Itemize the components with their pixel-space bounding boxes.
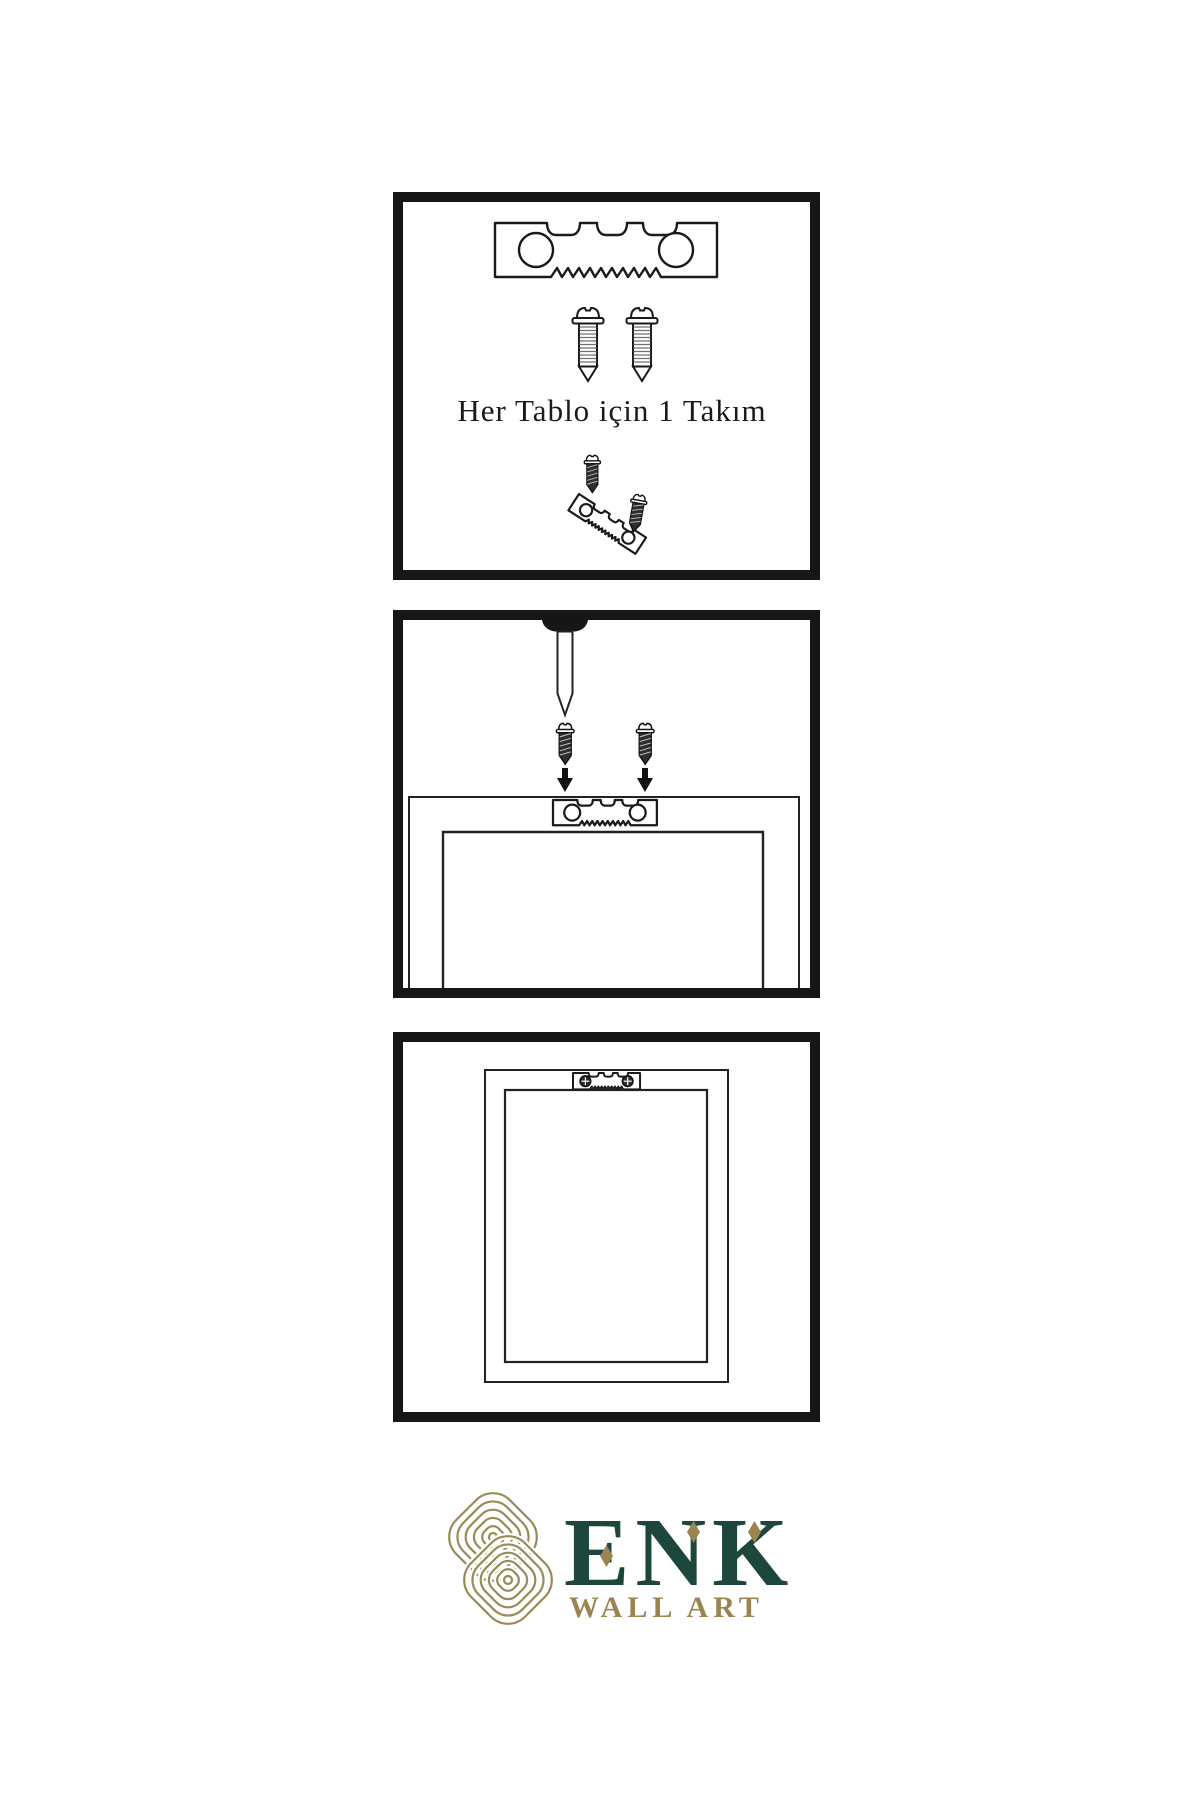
arrow-down-icon [557,768,573,792]
phillips-screw-head-icon [580,1076,590,1086]
panel-attach-hanger [393,610,820,998]
screw-icon [573,308,604,381]
frame-mounted [485,1070,728,1382]
kit-caption: Her Tablo için 1 Takım [457,393,766,428]
sawtooth-hanger-icon [495,223,717,277]
screw-icon [627,308,658,381]
hanger-assembly-angled [568,455,648,554]
knot-logo-icon [438,1490,563,1627]
panel-hardware-kit: Her Tablo için 1 Takım [393,192,820,580]
arrow-down-icon [637,768,653,792]
wall-nail-icon [542,620,588,715]
sawtooth-hanger-icon [553,800,657,825]
brand-subtitle: WALL ART [569,1593,764,1623]
brand-name: ENK [564,1504,794,1602]
phillips-screw-head-icon [623,1076,633,1086]
panel-hung-frame [393,1032,820,1422]
dark-screw-icon [556,723,574,764]
dark-screw-icon [584,455,600,492]
instruction-sheet: Her Tablo için 1 Takım [0,0,1200,1800]
dark-screw-icon [626,493,648,533]
dark-screw-icon [636,723,654,764]
